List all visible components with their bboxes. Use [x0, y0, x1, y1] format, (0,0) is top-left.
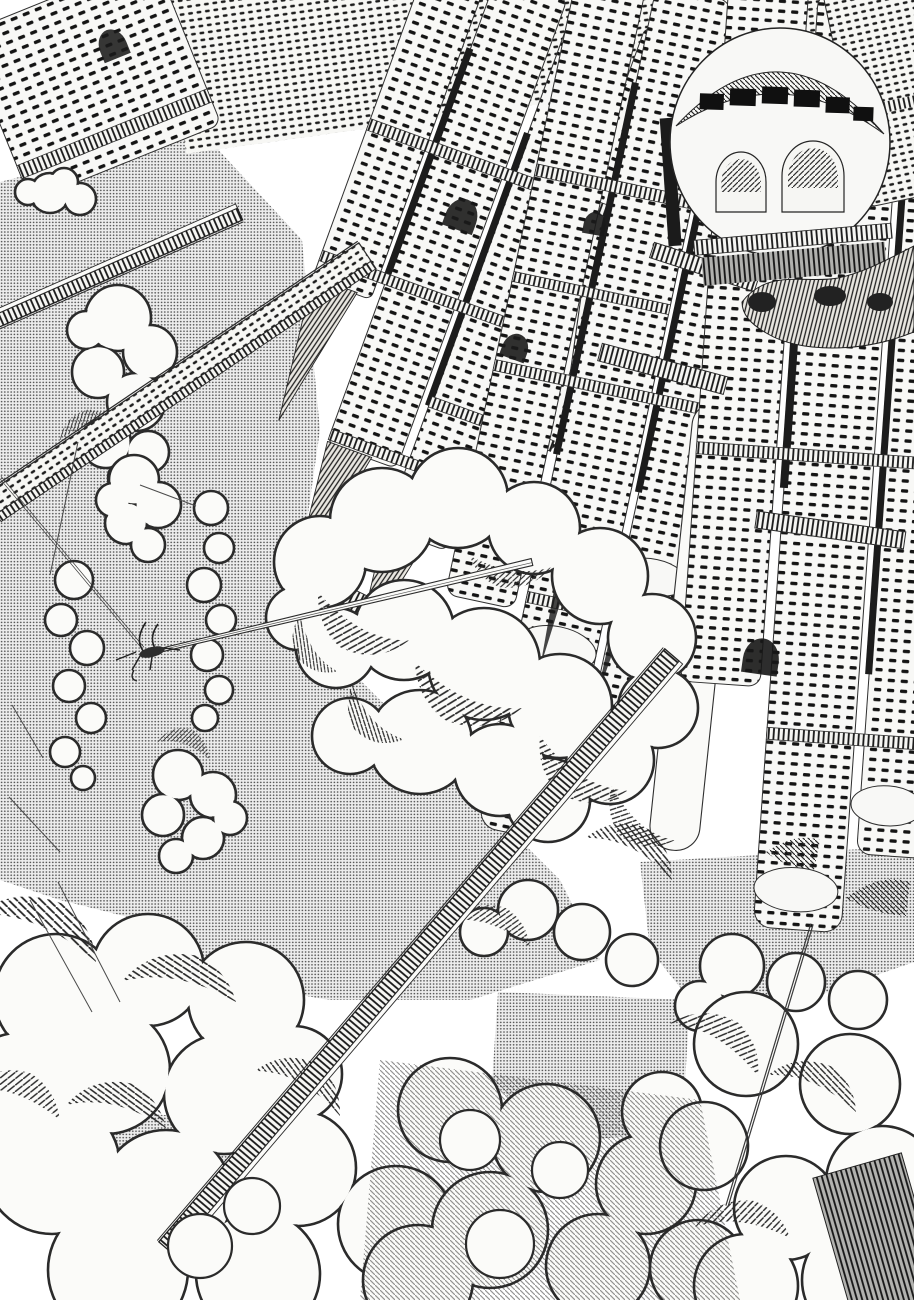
vegetation-clump [814, 286, 846, 306]
dome-arch-2 [782, 141, 844, 212]
vegetation-clump [867, 293, 893, 311]
vegetation-clump [748, 292, 776, 312]
dome-arch-1 [716, 152, 766, 212]
manga-page [0, 0, 914, 1300]
dome-castle [670, 28, 895, 286]
illustration-canvas [0, 0, 914, 1300]
